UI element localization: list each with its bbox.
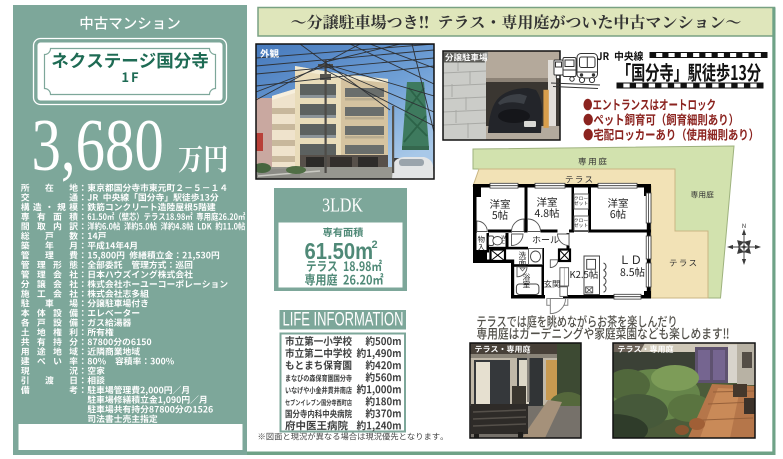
svg-text:3,680: 3,680 [32,105,164,187]
svg-text:61.50m: 61.50m [305,238,374,265]
svg-text:3LDK: 3LDK [322,194,363,216]
svg-text:LIFE INFORMATION: LIFE INFORMATION [283,310,404,331]
svg-text:2: 2 [372,239,378,251]
